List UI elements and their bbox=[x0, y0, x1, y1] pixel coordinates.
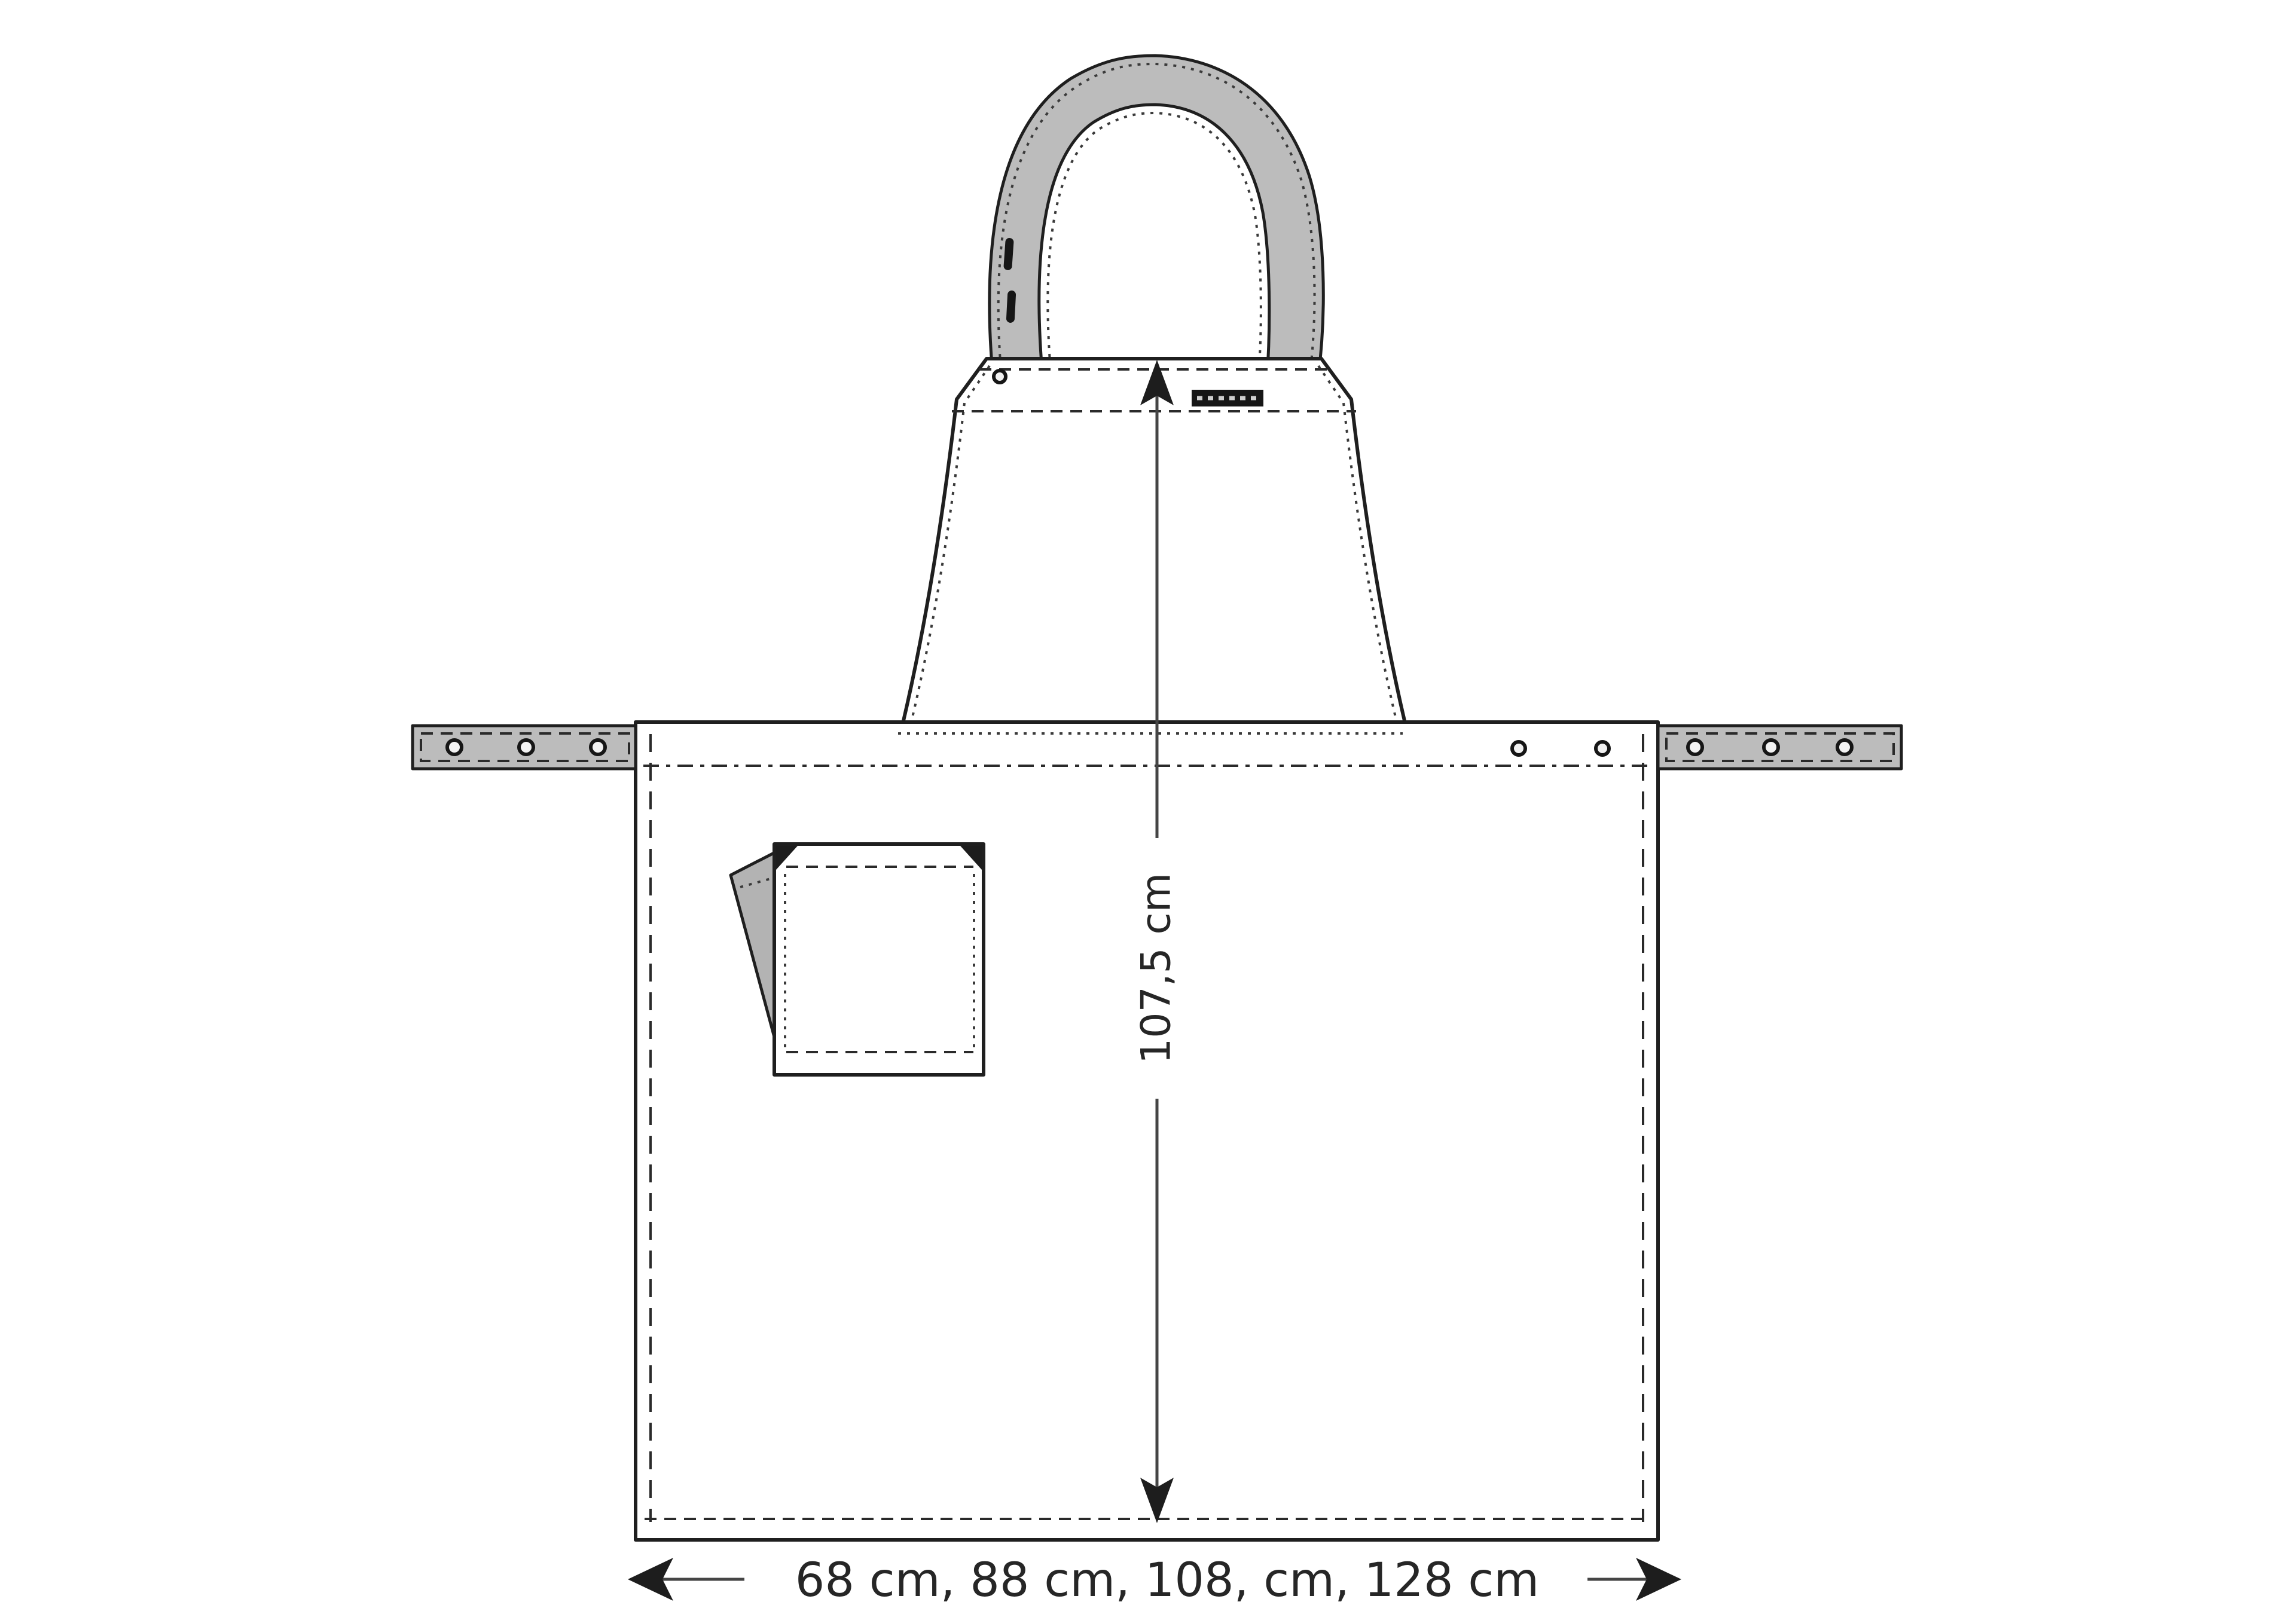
pocket-outline bbox=[774, 844, 984, 1075]
right-waist-tie bbox=[1658, 726, 1901, 769]
tie-rivet bbox=[519, 740, 533, 754]
width-arrow-left bbox=[628, 1558, 744, 1601]
tie-rivet bbox=[591, 740, 605, 754]
bib-rivet bbox=[994, 371, 1006, 383]
strap-buttonhole-lower bbox=[1006, 291, 1016, 323]
tie-rivet bbox=[1688, 740, 1702, 754]
diagram-canvas: 107,5 cm 68 cm, 88 cm, 108, cm, 128 cm bbox=[0, 0, 2296, 1605]
width-arrow-right bbox=[1587, 1558, 1681, 1601]
skirt-rivet-inner bbox=[1512, 742, 1525, 755]
tie-rivet bbox=[447, 740, 462, 754]
bib-panel bbox=[903, 359, 1405, 723]
neck-strap-band bbox=[990, 56, 1323, 386]
height-dimension-label: 107,5 cm bbox=[1133, 873, 1180, 1064]
neck-strap bbox=[990, 56, 1323, 386]
brand-label bbox=[1192, 390, 1263, 406]
bib-outline bbox=[903, 359, 1405, 723]
width-dimension: 68 cm, 88 cm, 108, cm, 128 cm bbox=[628, 1554, 1681, 1605]
skirt-rivet-outer bbox=[1596, 742, 1609, 755]
width-dimension-label: 68 cm, 88 cm, 108, cm, 128 cm bbox=[795, 1554, 1539, 1605]
tie-rivet bbox=[1837, 740, 1852, 754]
apron-technical-drawing: 107,5 cm 68 cm, 88 cm, 108, cm, 128 cm bbox=[0, 0, 2296, 1605]
left-waist-tie bbox=[413, 726, 636, 769]
strap-inner-stitch bbox=[1048, 113, 1261, 384]
tie-rivet bbox=[1764, 740, 1778, 754]
